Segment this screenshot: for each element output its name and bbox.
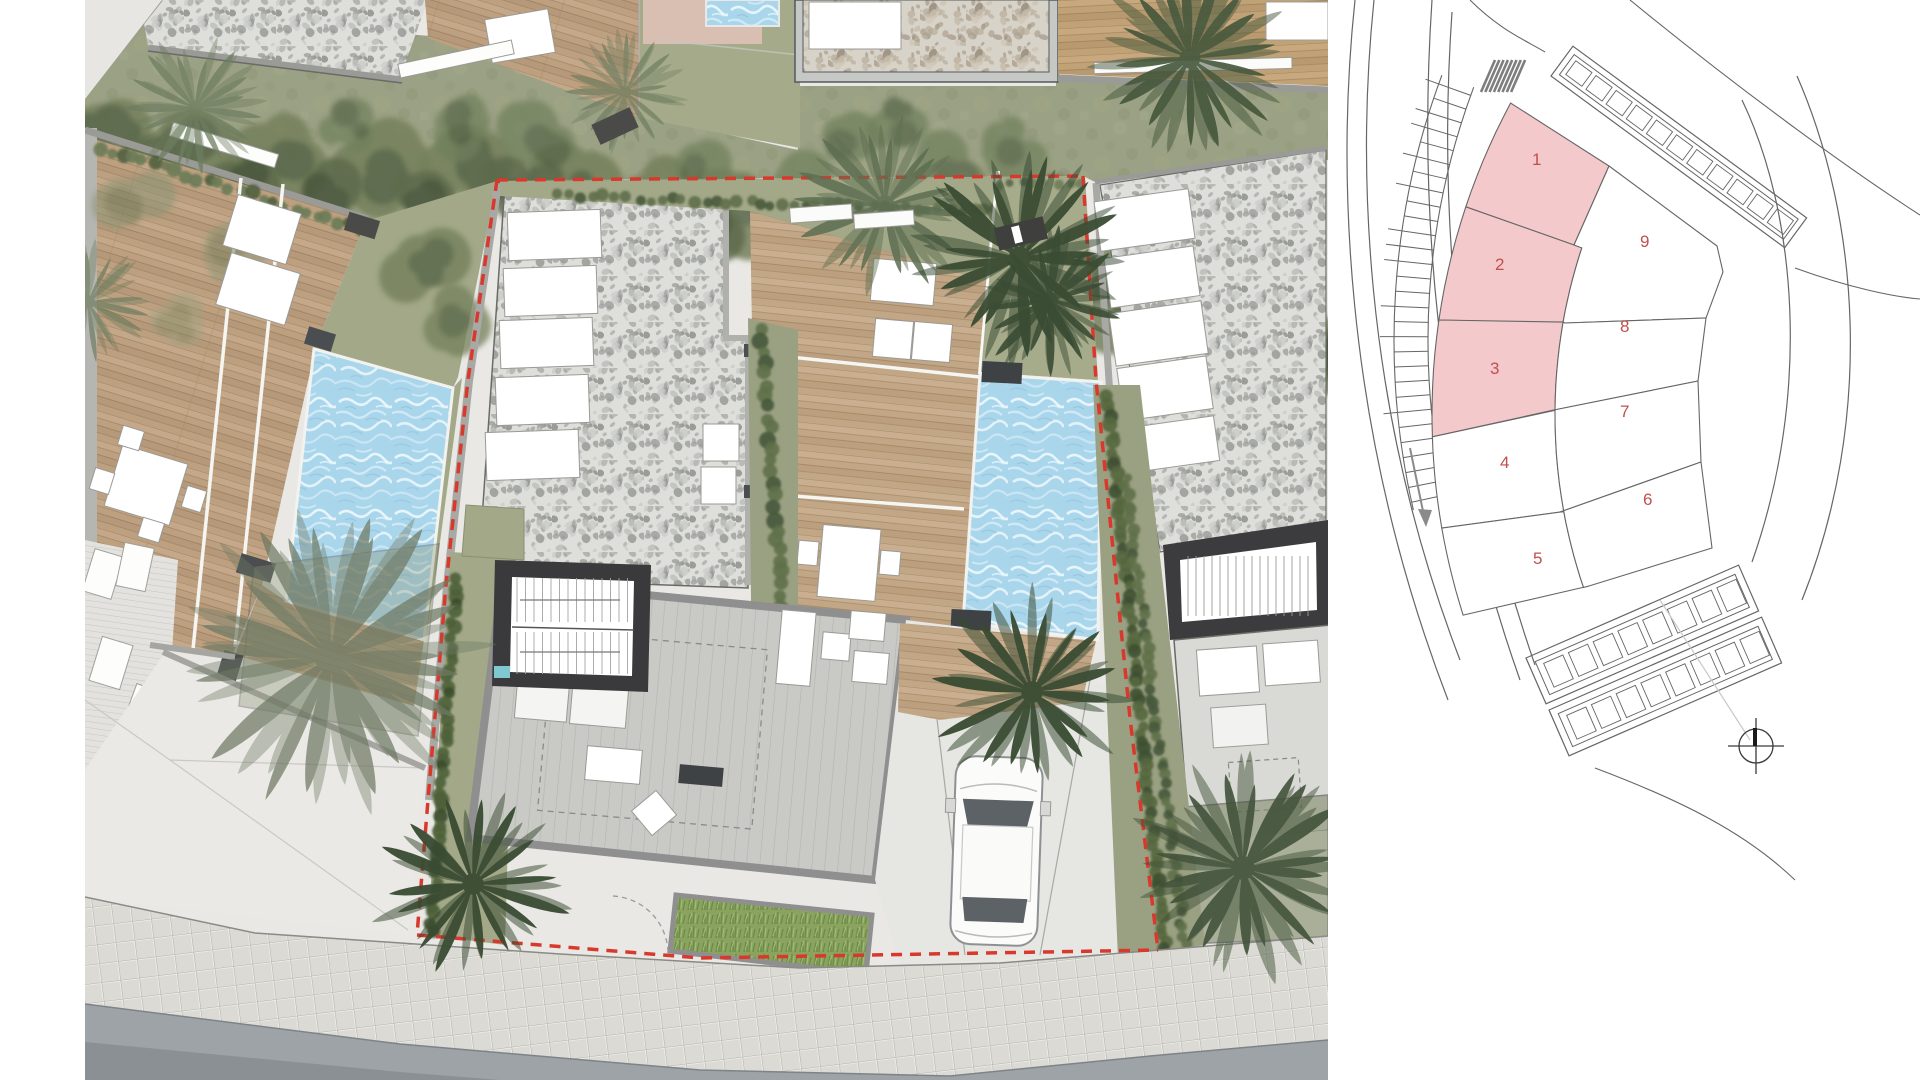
svg-text:8: 8 bbox=[1620, 317, 1629, 336]
svg-text:7: 7 bbox=[1620, 402, 1629, 421]
svg-text:4: 4 bbox=[1500, 453, 1509, 472]
svg-text:2: 2 bbox=[1495, 255, 1504, 274]
svg-text:9: 9 bbox=[1640, 232, 1649, 251]
svg-text:5: 5 bbox=[1533, 549, 1542, 568]
svg-text:3: 3 bbox=[1490, 359, 1499, 378]
svg-text:6: 6 bbox=[1643, 490, 1652, 509]
svg-text:1: 1 bbox=[1532, 150, 1541, 169]
